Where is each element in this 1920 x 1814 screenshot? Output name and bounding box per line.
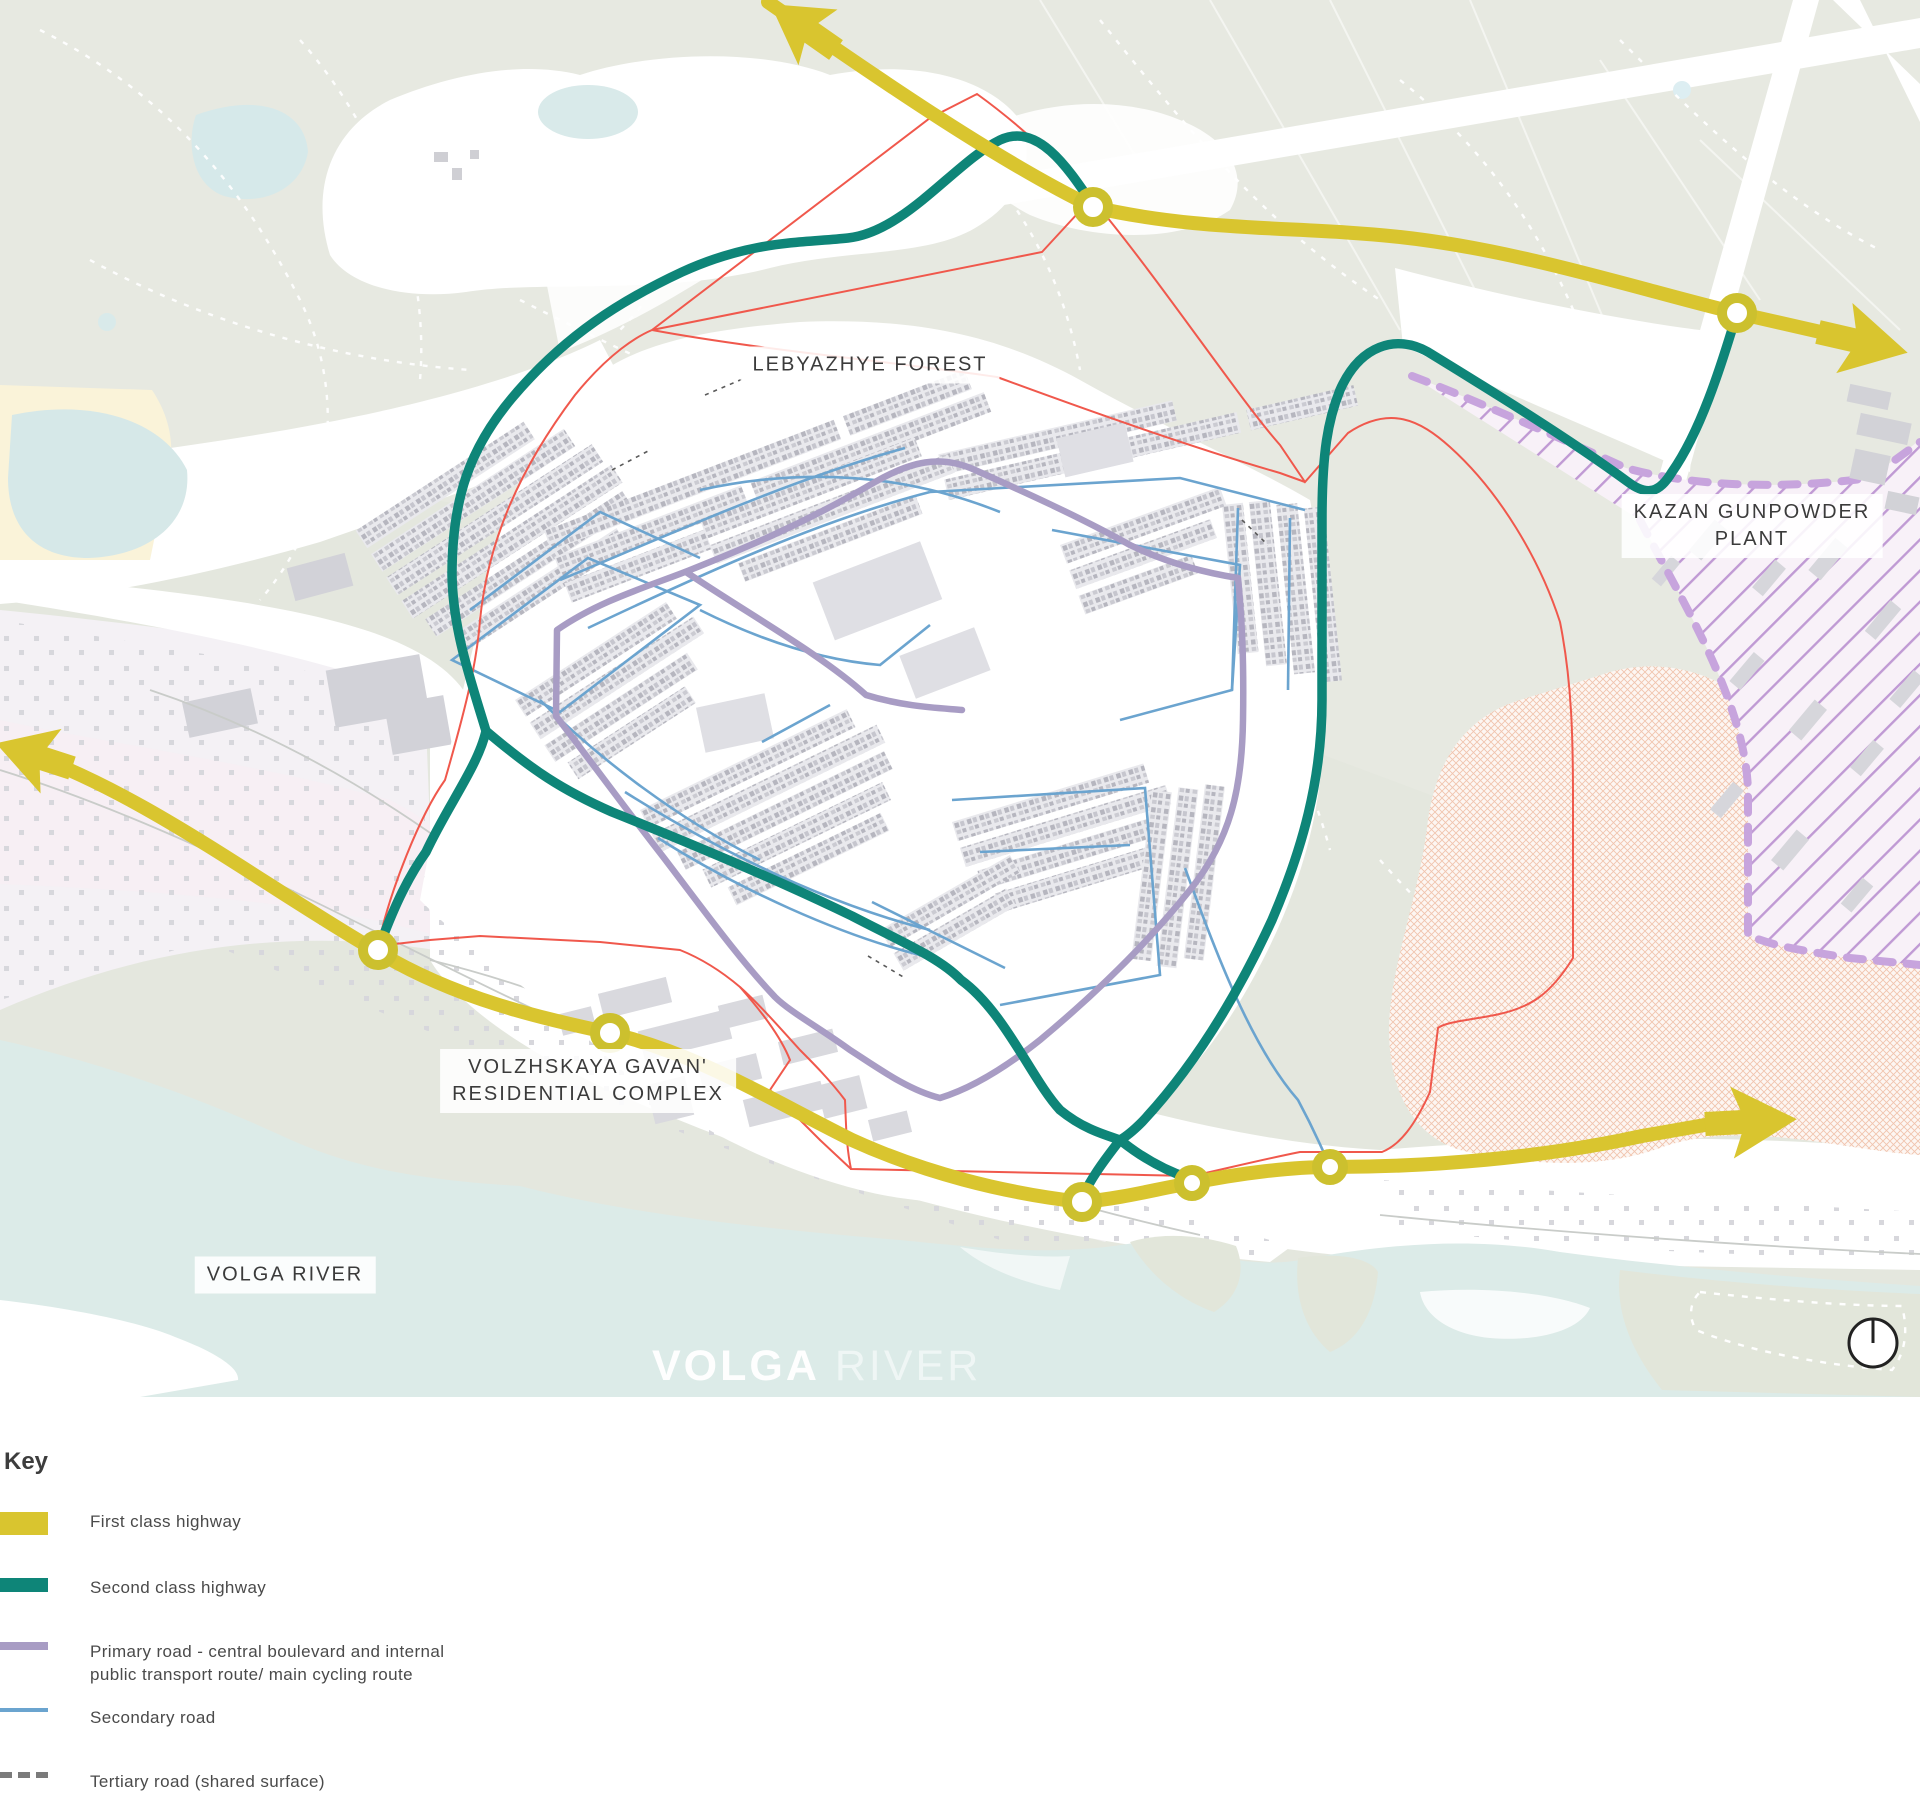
legend-label-primary-line2: public transport route/ main cycling rou… [90,1663,444,1686]
legend-label-primary-line1: Primary road - central boulevard and int… [90,1640,444,1663]
label-kazan-line1: KAZAN GUNPOWDER [1634,499,1871,526]
tertiary-road-swatch [0,1772,48,1778]
watermark-river: RIVER [820,1342,981,1390]
secondary-road-swatch [0,1708,48,1712]
primary-road-swatch [0,1642,48,1650]
watermark-volga: VOLGA [652,1342,820,1390]
legend-item-secondary-road: Secondary road [0,1708,216,1731]
first-class-highway-swatch [0,1512,48,1535]
masterplan-map: LEBYAZHYE FOREST KAZAN GUNPOWDER PLANT V… [0,0,1920,1400]
label-lebyazhye-forest-text: LEBYAZHYE FOREST [752,354,987,376]
label-volzhskaya-line1: VOLZHSKAYA GAVAN' [452,1054,724,1081]
volga-river-watermark: VOLGA RIVER [652,1342,981,1391]
label-volzhskaya-gavan: VOLZHSKAYA GAVAN' RESIDENTIAL COMPLEX [440,1049,736,1113]
map-canvas [0,0,1920,1400]
second-class-highway-swatch [0,1578,48,1592]
legend-label-second-class: Second class highway [90,1576,266,1599]
legend-item-first-class: First class highway [0,1512,241,1535]
legend-label-secondary-road: Secondary road [90,1706,216,1729]
label-volga-river-text: VOLGA RIVER [207,1264,364,1286]
legend-label-tertiary-road: Tertiary road (shared surface) [90,1770,325,1793]
label-kazan-gunpowder-plant: KAZAN GUNPOWDER PLANT [1622,494,1883,558]
legend-item-second-class: Second class highway [0,1578,266,1601]
legend: Key First class highway Second class hig… [0,1448,900,1476]
north-icon [1849,1319,1897,1367]
legend-label-first-class: First class highway [90,1510,241,1533]
legend-label-primary-road: Primary road - central boulevard and int… [90,1640,444,1686]
legend-item-primary-road: Primary road - central boulevard and int… [0,1642,444,1688]
legend-title: Key [4,1448,900,1476]
legend-item-tertiary-road: Tertiary road (shared surface) [0,1772,325,1795]
label-kazan-line2: PLANT [1634,526,1871,553]
label-volzhskaya-line2: RESIDENTIAL COMPLEX [452,1081,724,1108]
label-lebyazhye-forest: LEBYAZHYE FOREST [740,347,999,384]
label-volga-river: VOLGA RIVER [195,1257,376,1294]
